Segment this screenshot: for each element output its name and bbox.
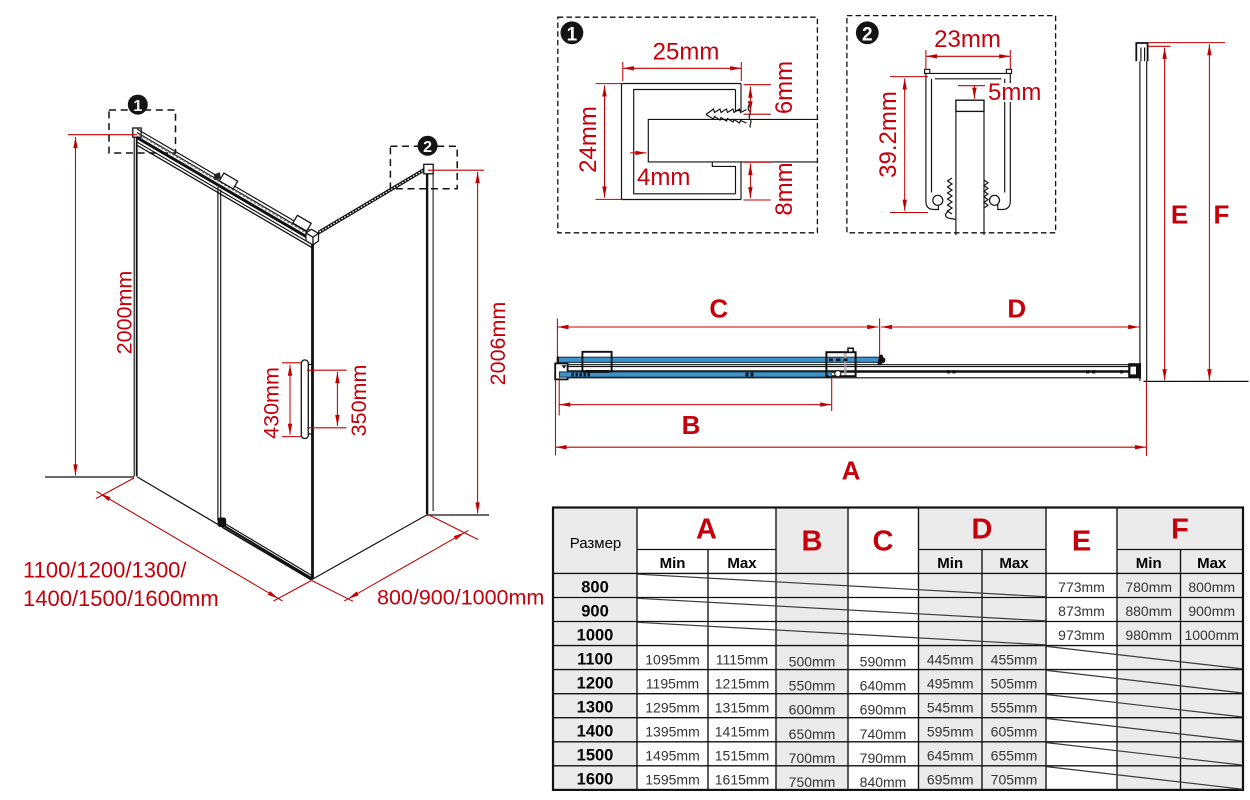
svg-text:Min: Min [1136, 555, 1162, 572]
svg-text:595mm: 595mm [927, 724, 974, 740]
svg-text:2006mm: 2006mm [486, 302, 510, 386]
svg-text:590mm: 590mm [860, 654, 907, 670]
svg-text:1395mm: 1395mm [645, 724, 699, 740]
svg-text:873mm: 873mm [1058, 603, 1105, 619]
svg-text:740mm: 740mm [860, 726, 907, 742]
svg-text:790mm: 790mm [860, 750, 907, 766]
svg-text:Размер: Размер [570, 535, 622, 552]
svg-text:640mm: 640mm [860, 678, 907, 694]
svg-text:655mm: 655mm [991, 748, 1038, 764]
svg-text:840mm: 840mm [860, 774, 907, 790]
svg-text:800/900/1000mm: 800/900/1000mm [377, 586, 544, 610]
svg-text:Min: Min [937, 555, 963, 572]
svg-text:F: F [1214, 200, 1230, 230]
svg-text:900mm: 900mm [1188, 603, 1235, 619]
svg-text:1095mm: 1095mm [645, 651, 699, 667]
svg-text:1400: 1400 [577, 723, 614, 741]
svg-text:800mm: 800mm [1188, 579, 1235, 595]
svg-text:Max: Max [727, 555, 757, 572]
svg-text:B: B [802, 526, 823, 558]
svg-text:645mm: 645mm [927, 748, 974, 764]
svg-text:D: D [1007, 294, 1026, 324]
svg-text:8mm: 8mm [771, 162, 798, 215]
svg-text:500mm: 500mm [789, 654, 836, 670]
svg-text:455mm: 455mm [991, 651, 1038, 667]
svg-text:F: F [1171, 514, 1189, 546]
svg-text:5mm: 5mm [988, 79, 1041, 106]
svg-text:445mm: 445mm [927, 651, 974, 667]
svg-text:24mm: 24mm [575, 106, 602, 173]
svg-text:1515mm: 1515mm [715, 748, 769, 764]
svg-text:695mm: 695mm [927, 772, 974, 788]
svg-text:1415mm: 1415mm [715, 724, 769, 740]
svg-text:23mm: 23mm [934, 26, 1001, 53]
svg-text:750mm: 750mm [789, 774, 836, 790]
svg-text:350mm: 350mm [347, 365, 371, 437]
svg-text:A: A [696, 514, 717, 546]
svg-text:650mm: 650mm [789, 726, 836, 742]
svg-text:1100: 1100 [577, 651, 613, 669]
svg-text:1000mm: 1000mm [1184, 627, 1238, 643]
svg-text:1115mm: 1115mm [716, 651, 768, 667]
svg-text:1495mm: 1495mm [645, 748, 699, 764]
svg-text:Max: Max [1197, 555, 1227, 572]
svg-text:900: 900 [581, 602, 609, 620]
svg-text:E: E [1072, 526, 1091, 558]
svg-text:980mm: 980mm [1125, 627, 1172, 643]
svg-text:39.2mm: 39.2mm [875, 91, 902, 178]
svg-text:605mm: 605mm [991, 724, 1038, 740]
svg-text:780mm: 780mm [1125, 579, 1172, 595]
svg-text:495mm: 495mm [927, 675, 974, 691]
svg-text:1: 1 [567, 24, 578, 45]
svg-text:D: D [972, 514, 993, 546]
svg-text:1: 1 [133, 98, 142, 115]
svg-text:1300: 1300 [577, 699, 614, 717]
svg-text:1200: 1200 [577, 675, 614, 693]
svg-text:1195mm: 1195mm [646, 675, 699, 691]
svg-text:C: C [873, 526, 894, 558]
svg-text:6mm: 6mm [771, 61, 798, 114]
svg-text:690mm: 690mm [860, 702, 907, 718]
svg-text:C: C [709, 294, 728, 324]
svg-text:705mm: 705mm [991, 772, 1038, 788]
svg-text:555mm: 555mm [991, 700, 1038, 716]
svg-text:1500: 1500 [577, 747, 614, 765]
svg-text:1400/1500/1600mm: 1400/1500/1600mm [23, 586, 219, 611]
svg-text:1295mm: 1295mm [645, 700, 699, 716]
svg-text:25mm: 25mm [653, 39, 720, 66]
svg-text:A: A [842, 456, 861, 486]
svg-text:1100/1200/1300/: 1100/1200/1300/ [23, 558, 187, 583]
svg-text:550mm: 550mm [789, 678, 836, 694]
svg-text:1600: 1600 [577, 771, 614, 789]
svg-text:600mm: 600mm [789, 702, 836, 718]
svg-text:Max: Max [999, 555, 1029, 572]
svg-text:B: B [682, 410, 701, 440]
svg-text:4mm: 4mm [637, 164, 690, 191]
svg-text:1215mm: 1215mm [715, 675, 769, 691]
svg-text:545mm: 545mm [927, 700, 974, 716]
svg-text:773mm: 773mm [1058, 579, 1105, 595]
svg-text:1595mm: 1595mm [645, 772, 699, 788]
svg-text:1000: 1000 [577, 626, 614, 644]
svg-text:1615mm: 1615mm [715, 772, 769, 788]
svg-text:2: 2 [862, 24, 873, 45]
svg-text:E: E [1171, 200, 1188, 230]
svg-text:880mm: 880mm [1125, 603, 1172, 619]
svg-text:973mm: 973mm [1058, 627, 1105, 643]
svg-text:430mm: 430mm [260, 367, 284, 439]
svg-text:700mm: 700mm [789, 750, 836, 766]
svg-text:505mm: 505mm [991, 675, 1038, 691]
svg-text:2000mm: 2000mm [113, 271, 137, 355]
svg-text:1315mm: 1315mm [715, 700, 769, 716]
svg-text:800: 800 [581, 578, 609, 596]
svg-text:Min: Min [660, 555, 686, 572]
svg-text:2: 2 [423, 139, 432, 156]
